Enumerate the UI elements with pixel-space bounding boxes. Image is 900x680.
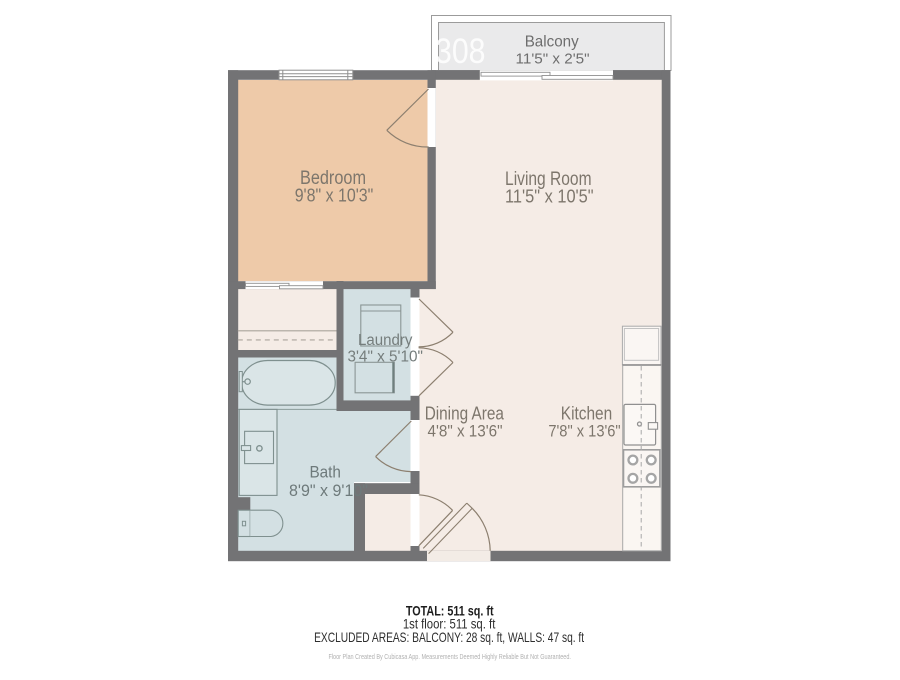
svg-text:EXCLUDED AREAS: BALCONY: 28 sq: EXCLUDED AREAS: BALCONY: 28 sq. ft, WALL… [314,629,584,645]
svg-text:8'9" x 9'10": 8'9" x 9'10" [289,481,368,500]
svg-text:9'8" x 10'3": 9'8" x 10'3" [295,185,374,205]
svg-text:4'8" x 13'6": 4'8" x 13'6" [428,421,503,440]
svg-text:7'8" x 13'6": 7'8" x 13'6" [548,421,620,440]
svg-text:Bath: Bath [309,463,341,482]
svg-text:Dining Area: Dining Area [425,403,505,423]
svg-text:Floor Plan Created By Cubicasa: Floor Plan Created By Cubicasa App. Meas… [328,652,571,661]
svg-text:11'5" x 10'5": 11'5" x 10'5" [505,186,594,206]
svg-text:308: 308 [435,31,486,71]
svg-text:11'5" x 2'5": 11'5" x 2'5" [516,51,590,68]
svg-text:Balcony: Balcony [525,34,579,51]
svg-text:Laundry: Laundry [358,332,413,349]
svg-text:3'4" x 5'10": 3'4" x 5'10" [348,348,423,365]
